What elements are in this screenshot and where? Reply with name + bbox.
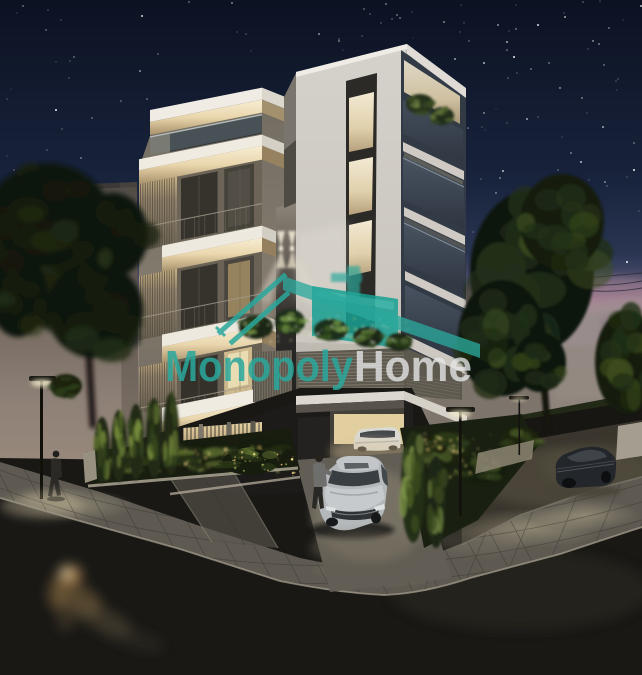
svg-text:Monopoly: Monopoly xyxy=(165,342,353,391)
svg-text:Home: Home xyxy=(354,342,472,391)
